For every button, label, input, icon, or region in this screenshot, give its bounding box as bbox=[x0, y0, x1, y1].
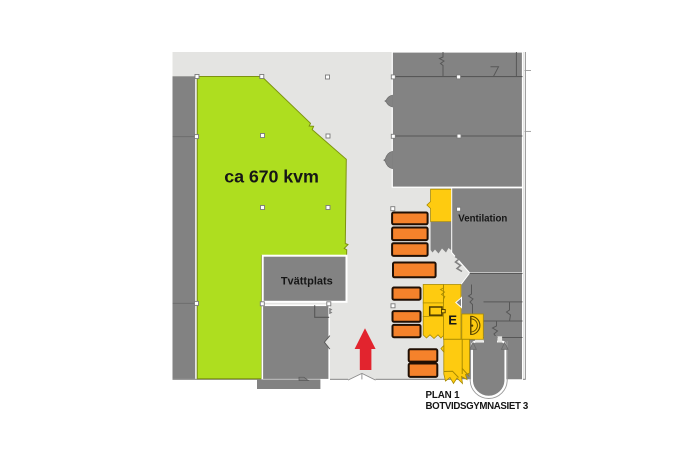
svg-text:ca 670 kvm: ca 670 kvm bbox=[224, 166, 319, 186]
svg-text:BOTVIDSGYMNASIET 3: BOTVIDSGYMNASIET 3 bbox=[426, 401, 529, 412]
svg-text:PLAN 1: PLAN 1 bbox=[426, 390, 461, 401]
svg-text:Ventilation: Ventilation bbox=[458, 214, 507, 225]
svg-text:Tvättplats: Tvättplats bbox=[281, 275, 333, 287]
svg-text:E: E bbox=[448, 312, 457, 327]
